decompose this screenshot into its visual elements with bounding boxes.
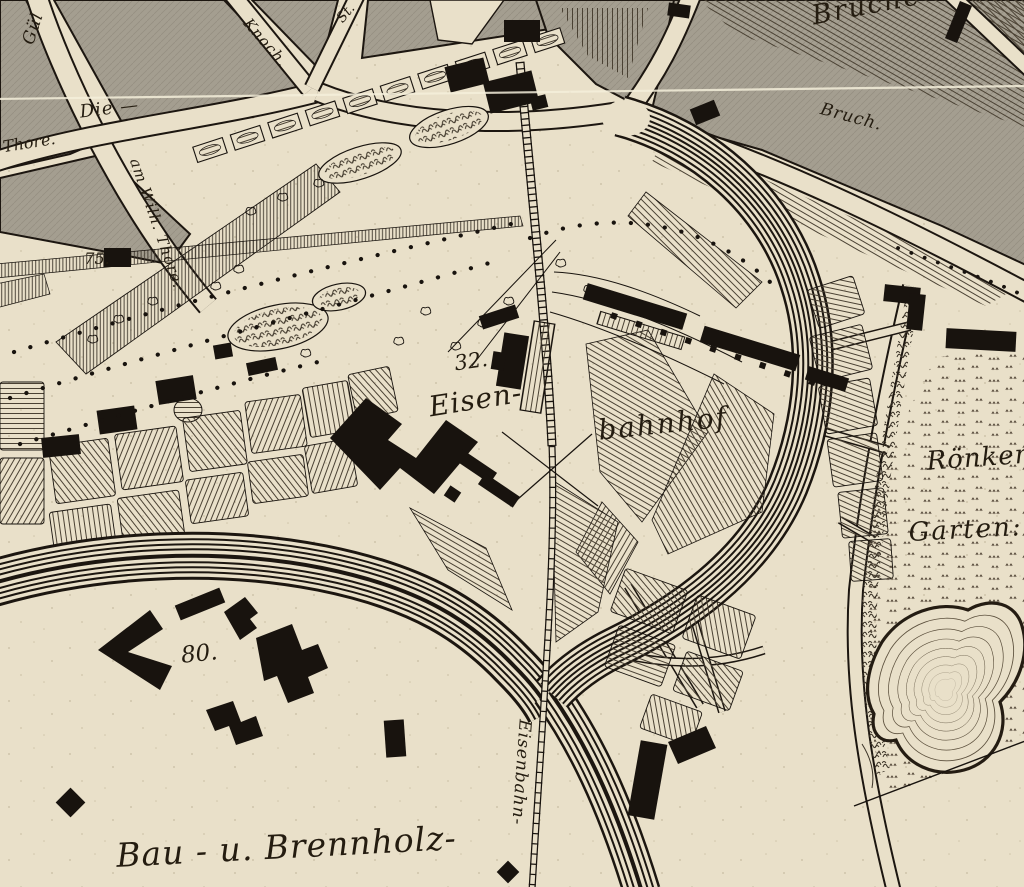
label-number-75: 75. <box>84 249 109 268</box>
label-area-garten: Garten: <box>908 512 1023 548</box>
building <box>384 719 407 757</box>
map-canvas[interactable]: Gül Knoch. St. Die — Thore. am Wilh. Tho… <box>0 0 1024 887</box>
label-number-32: 32. <box>453 347 489 375</box>
map-page: Gül Knoch. St. Die — Thore. am Wilh. Tho… <box>0 0 1024 887</box>
garden-plot <box>245 394 308 453</box>
garden-plot <box>185 472 249 524</box>
label-number-80: 80. <box>180 639 219 669</box>
garden-plot <box>827 433 883 487</box>
garden-plot <box>183 410 248 472</box>
building <box>504 20 540 42</box>
street-junction <box>602 100 650 136</box>
building <box>946 328 1017 352</box>
building <box>491 351 507 371</box>
garden-plot <box>247 454 308 503</box>
garden-plot <box>0 458 44 524</box>
building <box>41 434 81 458</box>
garden-plot <box>114 426 183 490</box>
